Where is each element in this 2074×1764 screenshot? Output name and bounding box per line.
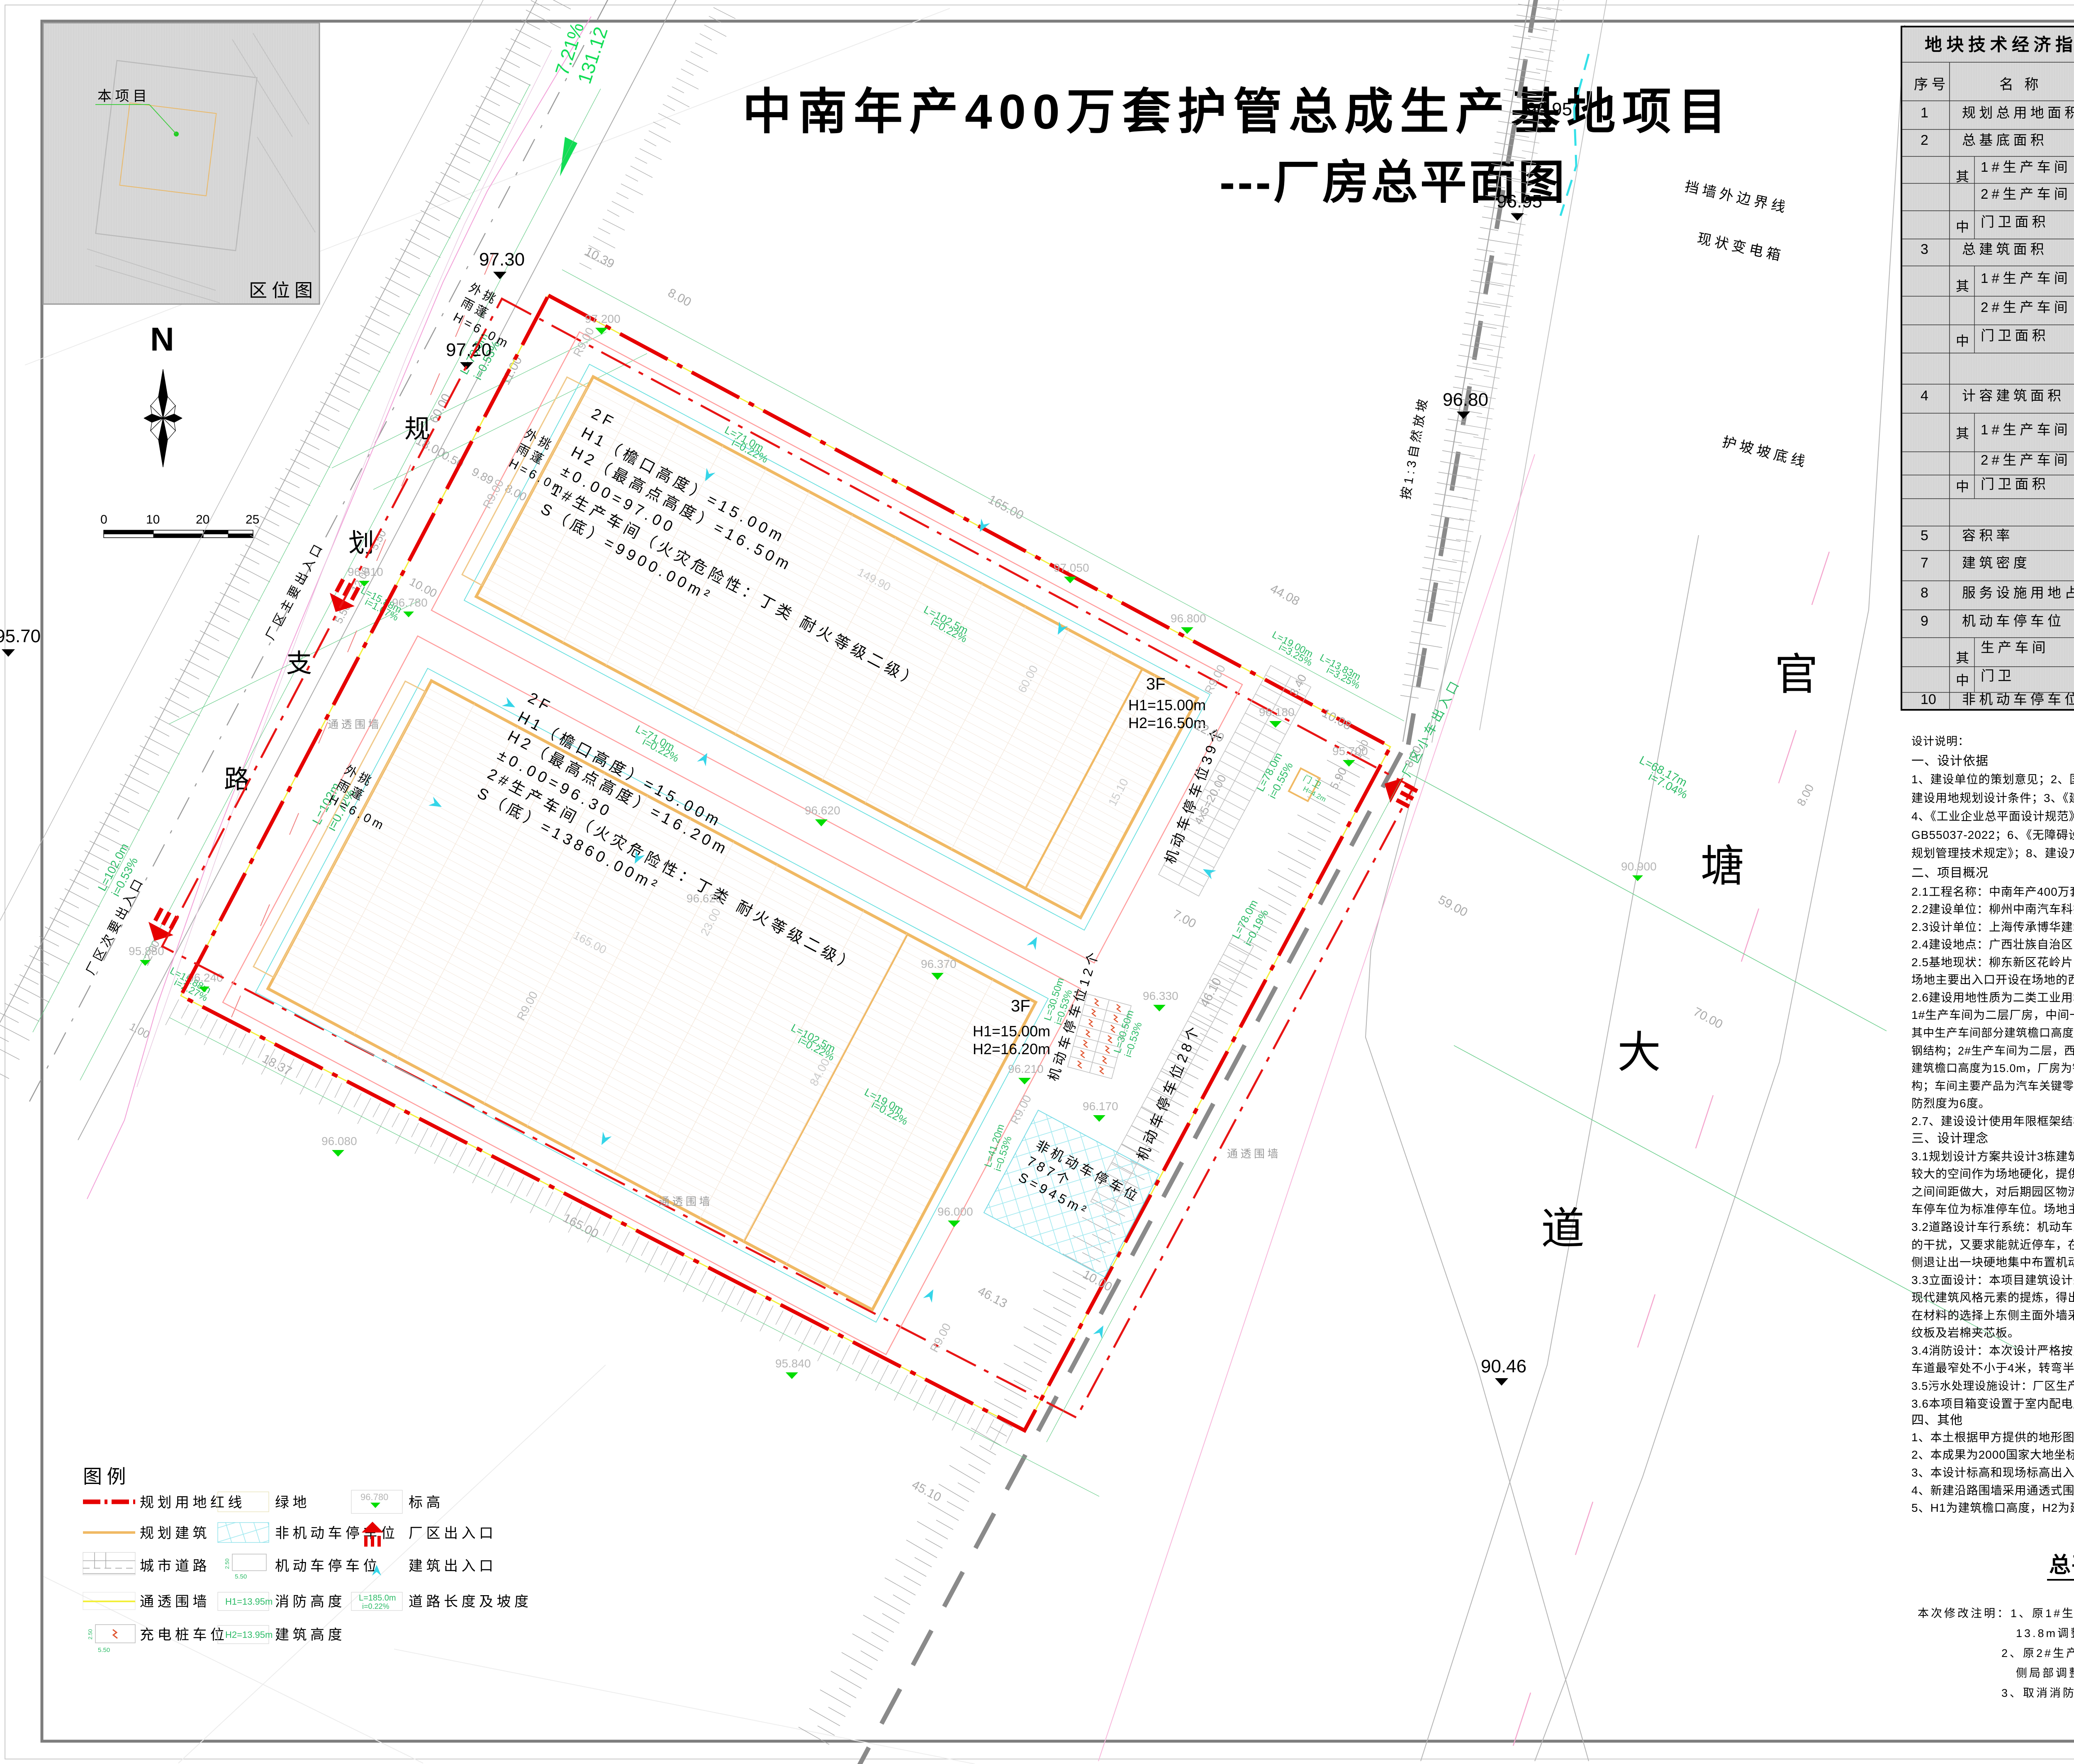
- svg-text:城市道路: 城市道路: [140, 1558, 210, 1574]
- svg-text:中: 中: [1956, 673, 1972, 688]
- svg-text:10: 10: [146, 513, 160, 526]
- svg-text:N: N: [150, 321, 174, 358]
- svg-text:中南年产400万套护管总成生产基地项目: 中南年产400万套护管总成生产基地项目: [742, 85, 1733, 139]
- svg-text:消防高度: 消防高度: [275, 1594, 346, 1610]
- svg-text:96.620: 96.620: [686, 892, 722, 905]
- svg-text:96.000: 96.000: [937, 1205, 973, 1218]
- svg-text:96.95: 96.95: [1497, 191, 1542, 212]
- svg-text:1#生产车间为二层厂房，中间一跨为一层通高，东侧局部为三层生: 1#生产车间为二层厂房，中间一跨为一层通高，东侧局部为三层生产车间，: [1911, 1009, 2074, 1021]
- svg-text:之间间距做大，对后期园区物流提供更便利流畅的空间；机动车停车: 之间间距做大，对后期园区物流提供更便利流畅的空间；机动车停车位及非机动: [1911, 1185, 2074, 1198]
- svg-text:其中生产车间部分建筑檐口高度为15.0m，三层生产车间部分建: 其中生产车间部分建筑檐口高度为15.0m，三层生产车间部分建筑高度为16.8m，…: [1911, 1027, 2074, 1039]
- svg-text:本次修改注明：1、原1#生产车间一层改为二层，中间一跨为二层: 本次修改注明：1、原1#生产车间一层改为二层，中间一跨为二层通高，建筑檐口高度从: [1918, 1607, 2074, 1620]
- svg-text:规划管理技术规定》；8、建设方提供的用地红线及电子地形图: 规划管理技术规定》；8、建设方提供的用地红线及电子地形图: [1911, 847, 2074, 860]
- svg-text:建设用地规划设计条件；3、《建筑设计防火规范》（GB5001: 建设用地规划设计条件；3、《建筑设计防火规范》（GB50016-2014)(20…: [1911, 792, 2074, 804]
- svg-text:侧退让出一块硬地集中布置机动车停车位，减少人行与车行的交叉，: 侧退让出一块硬地集中布置机动车停车位，减少人行与车行的交叉，又能方便管理。: [1911, 1256, 2074, 1269]
- svg-text:3.5污水处理设施设计：厂区生产污水经处理后通过排水管线衔接: 3.5污水处理设施设计：厂区生产污水经处理后通过排水管线衔接至市政污水口排放。: [1911, 1380, 2074, 1392]
- svg-text:1#生产车间: 1#生产车间: [1981, 422, 2071, 437]
- svg-text:建筑高度: 建筑高度: [275, 1627, 346, 1643]
- svg-text:道: 道: [1541, 1205, 1595, 1253]
- svg-text:96.780: 96.780: [360, 1492, 388, 1502]
- svg-text:96.80: 96.80: [1443, 390, 1488, 410]
- svg-text:服务设施用地占比: 服务设施用地占比: [1962, 585, 2074, 600]
- svg-text:图例: 图例: [83, 1466, 131, 1487]
- svg-text:2#生产车间: 2#生产车间: [1981, 300, 2071, 315]
- svg-text:8: 8: [1921, 585, 1928, 601]
- svg-text:支: 支: [286, 649, 319, 678]
- svg-text:2.3设计单位：上海传承博华建筑规划设计有限公司: 2.3设计单位：上海传承博华建筑规划设计有限公司: [1911, 921, 2074, 933]
- svg-text:2.7、建设设计使用年限框架结构为50年，钢结构为50年。: 2.7、建设设计使用年限框架结构为50年，钢结构为50年。: [1911, 1115, 2074, 1128]
- svg-text:5: 5: [1921, 528, 1928, 543]
- svg-text:大: 大: [1617, 1028, 1672, 1077]
- svg-text:4、《工业企业总平面设计规范》（GB50187-2012)；: 4、《工业企业总平面设计规范》（GB50187-2012)；5、《建筑防火通用规…: [1911, 810, 2074, 823]
- svg-text:门卫面积: 门卫面积: [1981, 476, 2049, 492]
- svg-text:机动车停车位: 机动车停车位: [275, 1558, 381, 1574]
- svg-text:97.30: 97.30: [479, 249, 525, 270]
- svg-text:96.620: 96.620: [805, 804, 840, 817]
- svg-text:二、项目概况: 二、项目概况: [1911, 866, 1989, 880]
- svg-text:3F: 3F: [1011, 997, 1030, 1015]
- svg-text:1、本土根据甲方提供的地形图绘制。: 1、本土根据甲方提供的地形图绘制。: [1911, 1431, 2074, 1444]
- svg-text:建筑密度: 建筑密度: [1962, 555, 2030, 570]
- svg-text:10: 10: [1921, 692, 1936, 707]
- svg-text:本项目: 本项目: [97, 88, 151, 104]
- svg-text:序号: 序号: [1914, 77, 1949, 93]
- svg-text:门卫面积: 门卫面积: [1981, 328, 2049, 343]
- svg-text:纹板及岩棉夹芯板。: 纹板及岩棉夹芯板。: [1911, 1326, 2020, 1339]
- svg-text:现代建筑风格元素的提炼，得出的线条和块、面的组合变化带来丰富: 现代建筑风格元素的提炼，得出的线条和块、面的组合变化带来丰富的立面效果；: [1911, 1291, 2074, 1304]
- svg-text:机动车停车位: 机动车停车位: [1962, 613, 2064, 629]
- svg-text:厂区出入口: 厂区出入口: [409, 1525, 497, 1541]
- svg-text:其: 其: [1956, 651, 1972, 665]
- svg-text:规: 规: [404, 415, 437, 443]
- svg-text:25: 25: [246, 513, 259, 526]
- svg-text:20: 20: [196, 513, 209, 526]
- svg-text:其: 其: [1956, 426, 1972, 441]
- svg-text:95.70: 95.70: [0, 626, 41, 646]
- svg-text:通透围墙: 通透围墙: [659, 1195, 713, 1208]
- svg-text:门卫: 门卫: [1981, 668, 2015, 683]
- svg-text:1: 1: [1921, 105, 1928, 121]
- svg-text:96.180: 96.180: [1259, 706, 1295, 719]
- svg-text:计容建筑面积: 计容建筑面积: [1962, 388, 2064, 403]
- svg-text:2.2建设单位：柳州中南汽车科技有限公司: 2.2建设单位：柳州中南汽车科技有限公司: [1911, 903, 2074, 916]
- svg-text:设计说明：: 设计说明：: [1911, 735, 1969, 748]
- svg-text:2: 2: [1921, 132, 1928, 148]
- svg-text:场地主要出入口开设在场地的西侧规划城市道路及东侧官塘大道。: 场地主要出入口开设在场地的西侧规划城市道路及东侧官塘大道。: [1911, 973, 2074, 986]
- svg-text:规划用地红线: 规划用地红线: [140, 1495, 246, 1511]
- svg-text:钢结构；2#生产车间为二层，西侧及中间两跨为一层通高，东侧局: 钢结构；2#生产车间为二层，西侧及中间两跨为一层通高，东侧局部为三层生产车间，: [1911, 1045, 2074, 1057]
- svg-text:2.4建设地点：广西壮族自治区: 柳州市柳东新区: 2.4建设地点：广西壮族自治区: 柳州市柳东新区: [1911, 938, 2074, 951]
- svg-text:9: 9: [1921, 613, 1928, 629]
- svg-text:防烈度为6度。: 防烈度为6度。: [1911, 1097, 1991, 1110]
- svg-text:97.20: 97.20: [446, 340, 492, 360]
- svg-text:5、H1为建筑檐口高度，H2为建筑高度（包括女儿墙）。: 5、H1为建筑檐口高度，H2为建筑高度（包括女儿墙）。: [1911, 1501, 2074, 1514]
- svg-text:塘: 塘: [1701, 842, 1755, 891]
- svg-text:5.50: 5.50: [98, 1647, 110, 1654]
- svg-text:1、建设单位的策划意见；2、国家、柳州市相关的规划、建筑设计: 1、建设单位的策划意见；2、国家、柳州市相关的规划、建筑设计法规、条例: [1911, 773, 2074, 786]
- svg-text:中: 中: [1956, 479, 1972, 494]
- svg-text:中: 中: [1956, 219, 1972, 234]
- svg-text:车道最窄处不小于4米，转弯半径为9米，能够使消防车在必要时刻: 车道最窄处不小于4米，转弯半径为9米，能够使消防车在必要时刻迅速到达现场。: [1911, 1362, 2074, 1374]
- svg-text:道路长度及坡度: 道路长度及坡度: [409, 1594, 532, 1610]
- svg-text:H2=16.20m: H2=16.20m: [973, 1040, 1050, 1057]
- svg-text:2、本成果为2000国家大地坐标系统，1985国家高程为基准: 2、本成果为2000国家大地坐标系统，1985国家高程为基准，所注尺寸单位为米。: [1911, 1448, 2074, 1461]
- svg-text:3.2道路设计车行系统：机动车到设计以方便、安全为原则，既要: 3.2道路设计车行系统：机动车到设计以方便、安全为原则，既要减少对步行人流: [1911, 1221, 2074, 1233]
- svg-text:建筑檐口高度为15.0m，厂房为钢结构；门卫为一层，建筑高度: 建筑檐口高度为15.0m，厂房为钢结构；门卫为一层，建筑高度为4.2m，混凝框架…: [1911, 1062, 2074, 1074]
- svg-text:地块技术经济指标: 地块技术经济指标: [1925, 35, 2074, 54]
- svg-text:96.610: 96.610: [348, 565, 383, 578]
- svg-text:3.1规划设计方案共设计3栋建筑，包括2栋生产车间及一栋门卫: 3.1规划设计方案共设计3栋建筑，包括2栋生产车间及一栋门卫，基地东侧退让: [1911, 1150, 2074, 1163]
- svg-text:2#生产车间: 2#生产车间: [1981, 186, 2071, 202]
- svg-text:四、其他: 四、其他: [1911, 1413, 1963, 1427]
- svg-text:2#生产车间: 2#生产车间: [1981, 452, 2071, 468]
- svg-text:3F: 3F: [1146, 675, 1166, 693]
- svg-text:划: 划: [348, 529, 381, 558]
- svg-text:建筑出入口: 建筑出入口: [409, 1558, 497, 1574]
- svg-text:2.1工程名称：中南年产400万套护管总成生产基地项目: 2.1工程名称：中南年产400万套护管总成生产基地项目: [1911, 885, 2074, 898]
- svg-text:总平面图 1:500: 总平面图 1:500: [2049, 1553, 2074, 1577]
- svg-text:规划总用地面积: 规划总用地面积: [1962, 105, 2074, 120]
- svg-text:规划建筑: 规划建筑: [140, 1525, 210, 1541]
- svg-text:7: 7: [1921, 555, 1928, 571]
- svg-text:3.6本项目箱变设置于室内配电房，具体配电房位置单体方案阶段: 3.6本项目箱变设置于室内配电房，具体配电房位置单体方案阶段确定。: [1911, 1397, 2074, 1410]
- svg-text:5.50: 5.50: [235, 1573, 247, 1580]
- svg-text:侧局部调整为三层生产车间，建筑檐口高度从13.8m调整为15: 侧局部调整为三层生产车间，建筑檐口高度从13.8m调整为15m。: [2016, 1667, 2074, 1679]
- svg-text:生产车间: 生产车间: [1981, 640, 2049, 655]
- svg-text:1#生产车间: 1#生产车间: [1981, 159, 2071, 175]
- svg-text:4、新建沿路围墙采用通透式围墙，相邻地块用地界线上设置围墙。: 4、新建沿路围墙采用通透式围墙，相邻地块用地界线上设置围墙。: [1911, 1484, 2074, 1497]
- svg-text:2、原2#生产车间一层改为二层，中间局部一跨及西边跨为二层通: 2、原2#生产车间一层改为二层，中间局部一跨及西边跨为二层通高，东: [2001, 1647, 2074, 1659]
- svg-text:97.050: 97.050: [1054, 561, 1089, 574]
- svg-text:门卫面积: 门卫面积: [1981, 214, 2049, 229]
- svg-text:充电桩车位: 充电桩车位: [140, 1627, 228, 1643]
- svg-text:总基底面积: 总基底面积: [1962, 132, 2047, 148]
- svg-text:其: 其: [1956, 279, 1972, 294]
- svg-text:97.200: 97.200: [585, 312, 621, 325]
- svg-text:3、取消消防水泵房及消防水池。: 3、取消消防水泵房及消防水池。: [2001, 1687, 2074, 1699]
- svg-text:车停车位为标准停车位。场地主要出入口开设在场地东侧、西侧与城: 车停车位为标准停车位。场地主要出入口开设在场地东侧、西侧与城市道路相连。: [1911, 1203, 2074, 1216]
- svg-text:容积率: 容积率: [1962, 528, 2013, 543]
- svg-text:其: 其: [1956, 169, 1972, 184]
- svg-text:95.840: 95.840: [775, 1357, 811, 1370]
- svg-text:3.4消防设计：本次设计严格按照国家规划进行设计；建筑间距满: 3.4消防设计：本次设计严格按照国家规划进行设计；建筑间距满足防火要求，消防: [1911, 1344, 2074, 1357]
- svg-text:较大的空间作为场地硬化，提供了足够的停车位及人流集散的场所；: 较大的空间作为场地硬化，提供了足够的停车位及人流集散的场所；两栋车间: [1911, 1167, 2074, 1180]
- svg-text:H1=15.00m: H1=15.00m: [973, 1023, 1050, 1040]
- svg-text:96.800: 96.800: [1171, 612, 1206, 625]
- svg-text:通透围墙: 通透围墙: [328, 718, 382, 731]
- svg-text:90.46: 90.46: [1481, 1356, 1526, 1377]
- svg-text:非机动车停车位: 非机动车停车位: [1962, 692, 2074, 707]
- svg-text:标高: 标高: [409, 1495, 444, 1511]
- svg-text:96.330: 96.330: [1143, 989, 1178, 1002]
- svg-text:H1=15.00m: H1=15.00m: [1128, 697, 1206, 714]
- svg-text:三、设计理念: 三、设计理念: [1911, 1132, 1989, 1145]
- svg-text:90.900: 90.900: [1621, 860, 1657, 873]
- svg-text:13.8m调整为15m；配套办公调整为生产车间，层数三层保持: 13.8m调整为15m；配套办公调整为生产车间，层数三层保持不变。: [2016, 1627, 2074, 1640]
- svg-text:96.080: 96.080: [321, 1135, 357, 1148]
- svg-text:H1=13.95m: H1=13.95m: [225, 1596, 273, 1607]
- svg-text:2.5基地现状：柳东新区花岭片区B-3-28-2地块，规划总: 2.5基地现状：柳东新区花岭片区B-3-28-2地块，规划总用地面积43385.…: [1911, 956, 2074, 969]
- svg-text:H2=13.95m: H2=13.95m: [225, 1630, 273, 1640]
- svg-text:3.3立面设计：本项目建筑设计采用现代风格，建筑形体以简洁的: 3.3立面设计：本项目建筑设计采用现代风格，建筑形体以简洁的线条为主，通过对: [1911, 1274, 2074, 1286]
- svg-text:96.780: 96.780: [392, 596, 428, 609]
- svg-text:绿地: 绿地: [275, 1495, 310, 1511]
- svg-text:1#生产车间: 1#生产车间: [1981, 270, 2071, 286]
- svg-text:路: 路: [224, 765, 256, 794]
- svg-text:4: 4: [1921, 388, 1928, 404]
- svg-text:2.50: 2.50: [224, 1559, 230, 1569]
- svg-text:3、本设计标高和现场标高出入较大时应以场地实际测量标高为结果: 3、本设计标高和现场标高出入较大时应以场地实际测量标高为结果为准。: [1911, 1466, 2074, 1479]
- svg-text:2.6建设用地性质为二类工业用地，主要用于厂区建设，包含生产: 2.6建设用地性质为二类工业用地，主要用于厂区建设，包含生产车间、门卫；: [1911, 991, 2074, 1004]
- svg-text:96.170: 96.170: [1083, 1100, 1118, 1113]
- svg-text:一、设计依据: 一、设计依据: [1911, 754, 1989, 768]
- svg-text:名 称: 名 称: [1999, 77, 2042, 93]
- svg-text:i=0.22%: i=0.22%: [362, 1602, 389, 1611]
- svg-text:3: 3: [1921, 241, 1928, 257]
- svg-text:总建筑面积: 总建筑面积: [1962, 241, 2047, 257]
- svg-text:的干扰，又要求能就近停车，在特殊情况下车辆需要达到建筑入口，: 的干扰，又要求能就近停车，在特殊情况下车辆需要达到建筑入口，因此在地块东: [1911, 1238, 2074, 1251]
- svg-text:通透围墙: 通透围墙: [140, 1594, 210, 1610]
- svg-text:L=185.0m: L=185.0m: [359, 1593, 396, 1603]
- svg-text:通透围墙: 通透围墙: [1227, 1148, 1281, 1160]
- svg-text:95.700: 95.700: [1332, 745, 1368, 758]
- svg-text:2.50: 2.50: [87, 1629, 93, 1640]
- svg-text:在材料的选择上东侧主面外墙采用铝板，提升城市面貌，其他几个面: 在材料的选择上东侧主面外墙采用铝板，提升城市面貌，其他几个面采用浅灰的波: [1911, 1309, 2074, 1322]
- svg-text:GB55037-2022；6、《无障碍设计规范》（GB507: GB55037-2022；6、《无障碍设计规范》（GB50763-2012)；7…: [1911, 828, 2074, 841]
- svg-text:0: 0: [100, 513, 107, 526]
- svg-text:96.95: 96.95: [1526, 99, 1572, 119]
- svg-text:96.210: 96.210: [1008, 1062, 1044, 1075]
- svg-text:95.880: 95.880: [129, 945, 164, 958]
- svg-text:官: 官: [1775, 651, 1829, 699]
- svg-text:构；车间主要产品为汽车关键零部件；耐火等级二级，火灾危险性为: 构；车间主要产品为汽车关键零部件；耐火等级二级，火灾危险性为丁类，抗震设: [1911, 1080, 2074, 1092]
- svg-text:96.370: 96.370: [921, 958, 957, 970]
- svg-text:区位图: 区位图: [249, 280, 317, 301]
- svg-text:中: 中: [1956, 334, 1972, 348]
